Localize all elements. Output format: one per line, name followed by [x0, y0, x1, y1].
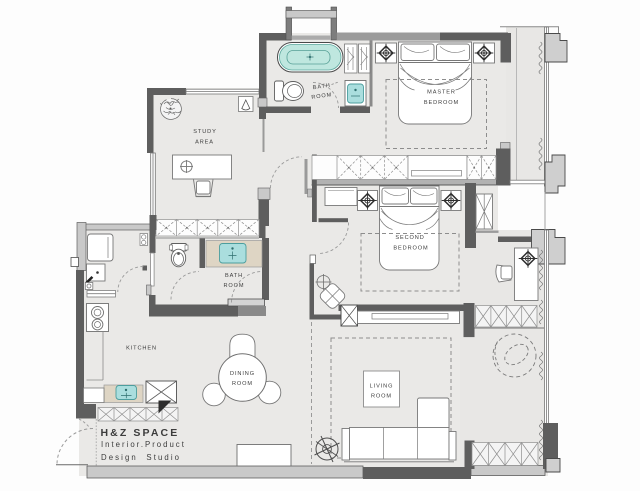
svg-text:MASTER: MASTER	[427, 90, 456, 96]
svg-text:LIVING: LIVING	[370, 384, 394, 390]
svg-text:ROOM: ROOM	[371, 394, 392, 400]
svg-text:Design Studio: Design Studio	[101, 453, 181, 462]
svg-text:BEDROOM: BEDROOM	[393, 246, 428, 252]
svg-text:H&Z SPACE: H&Z SPACE	[101, 427, 180, 439]
svg-text:DINING: DINING	[230, 371, 255, 377]
svg-text:SECOND: SECOND	[395, 235, 424, 241]
svg-text:AREA: AREA	[195, 140, 214, 146]
svg-text:Interior.Product: Interior.Product	[101, 440, 186, 449]
svg-text:BEDROOM: BEDROOM	[424, 100, 459, 106]
svg-text:BATH: BATH	[225, 273, 243, 279]
svg-text:STUDY: STUDY	[193, 129, 216, 135]
svg-text:KITCHEN: KITCHEN	[126, 346, 157, 352]
svg-text:ROOM: ROOM	[232, 381, 253, 387]
svg-text:ROOM: ROOM	[223, 283, 244, 289]
